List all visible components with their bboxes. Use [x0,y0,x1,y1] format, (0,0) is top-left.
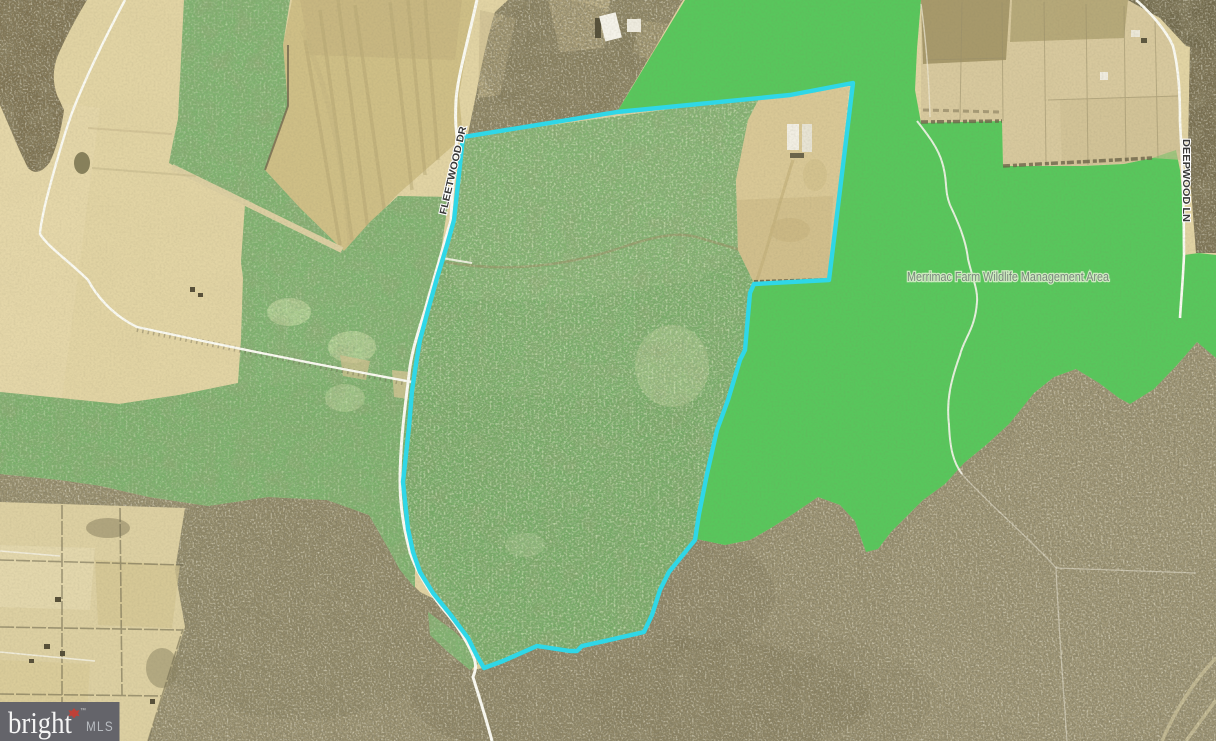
svg-text:™: ™ [80,707,86,714]
svg-text:DEEPWOOD LN: DEEPWOOD LN [1180,139,1191,222]
svg-text:MLS: MLS [86,719,114,734]
svg-text:Merrimac Farm Wildlife Managem: Merrimac Farm Wildlife Management Area [907,270,1109,284]
svg-text:bright: bright [8,705,72,740]
